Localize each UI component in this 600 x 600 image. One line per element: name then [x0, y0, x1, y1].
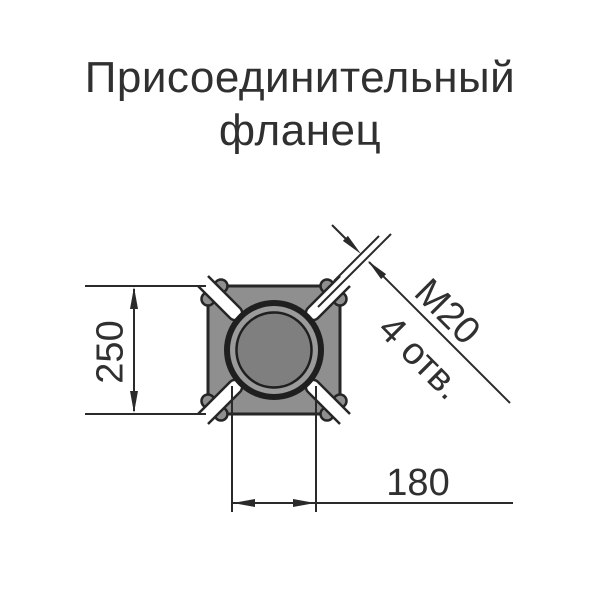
slot-axis-companion-line	[334, 236, 379, 281]
arrowhead-right	[293, 499, 315, 507]
arrowhead-up	[130, 287, 138, 309]
arrowhead-diagonal-down	[343, 236, 361, 254]
flange-drawing: 250 180 М20 4 отв.	[0, 0, 600, 600]
arrowhead-left	[233, 499, 255, 507]
arrowhead-down	[130, 391, 138, 413]
bore-circle	[237, 313, 312, 388]
dim-label-250: 250	[89, 320, 131, 383]
dim-label-180: 180	[386, 462, 449, 504]
